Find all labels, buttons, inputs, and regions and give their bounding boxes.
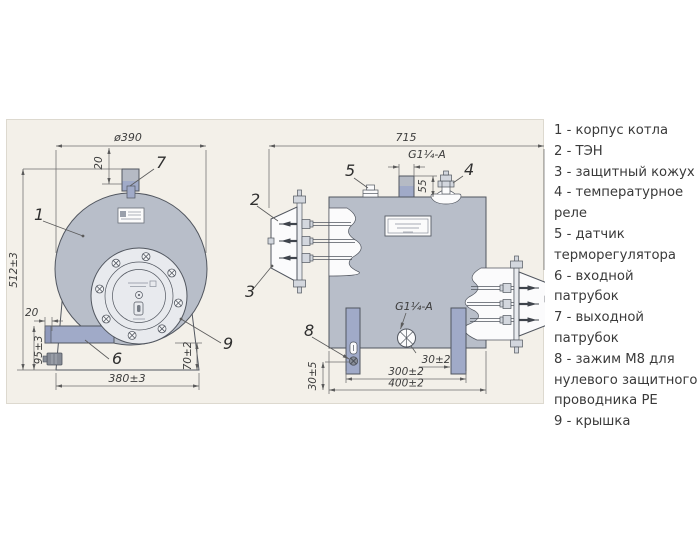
drawing-canvas: ø390 20 512±3 xyxy=(7,120,545,405)
dim-length-text: 715 xyxy=(396,131,417,144)
element-nuts-left xyxy=(302,220,313,263)
dim-diameter-text: ø390 xyxy=(113,131,142,144)
dim-inlet-height: 95±3 xyxy=(33,326,45,370)
side-view: 715 G1¼-A 55 G1¼-A xyxy=(245,131,545,394)
legend-item-1: 1 - корпус котла xyxy=(554,121,700,142)
dim-inlet-height-text: 95±3 xyxy=(33,336,45,365)
dim-leg-span-text: 300±2 xyxy=(388,366,424,378)
callout-3: 3 xyxy=(245,282,255,301)
dim-clamp-height-text: 30±5 xyxy=(307,361,319,390)
dim-cover-floor: 70±2 xyxy=(175,341,202,370)
dim-base-width-text: 380±3 xyxy=(108,372,145,385)
legend-item-3: 3 - защитный кожух xyxy=(554,163,700,184)
heating-element-right xyxy=(465,256,545,353)
callout-1: 1 xyxy=(34,205,44,224)
dim-inlet-thread-text: G1¼-A xyxy=(395,300,433,313)
dim-base-width: 380±3 xyxy=(56,372,199,390)
front-nameplate xyxy=(118,208,144,223)
callout-2: 2 xyxy=(250,190,260,209)
callout-5: 5 xyxy=(345,161,355,180)
legend-item-5: 5 - датчик терморегулятора xyxy=(554,225,700,267)
callout-6: 6 xyxy=(112,349,122,368)
dim-pipe-offset-text: 20 xyxy=(93,156,105,170)
inlet-boss xyxy=(398,329,417,353)
callout-9: 9 xyxy=(223,334,233,353)
legend-item-7: 7 - выходной патрубок xyxy=(554,308,700,350)
element-flange-left xyxy=(297,198,302,283)
dim-leg-inset-text: 30±2 xyxy=(422,354,451,366)
callout-7: 7 xyxy=(156,153,167,172)
dim-cover-floor-text: 70±2 xyxy=(182,341,194,370)
dim-inlet-offset-text: 20 xyxy=(25,307,39,319)
legend-item-4: 4 - температурное реле xyxy=(554,183,700,225)
legend-item-8: 8 - зажим М8 для нулевого защитного пров… xyxy=(554,350,700,412)
dim-base-length-text: 400±2 xyxy=(388,378,424,390)
front-view: ø390 20 512±3 xyxy=(8,131,233,390)
element-nuts-right xyxy=(500,284,511,325)
cover xyxy=(91,248,187,344)
thermostat-sensor xyxy=(363,185,378,197)
dim-height-text: 512±3 xyxy=(8,252,20,288)
callout-8: 8 xyxy=(304,321,314,340)
outlet-pipe-side xyxy=(399,176,414,197)
element-flange-right xyxy=(514,268,519,340)
dim-pipe-offset: 20 xyxy=(93,148,122,184)
technical-drawing: ø390 20 512±3 xyxy=(6,119,544,404)
legend-item-9: 9 - крышка xyxy=(554,412,700,433)
dim-outlet-thread: G1¼-A xyxy=(388,148,446,176)
legend-item-6: 6 - входной патрубок xyxy=(554,267,700,309)
leg-right xyxy=(451,308,466,374)
drain-fitting xyxy=(43,353,62,365)
legend-item-2: 2 - ТЭН xyxy=(554,142,700,163)
callout-4: 4 xyxy=(464,160,474,179)
side-nameplate xyxy=(385,216,431,236)
boiler-drawing-page: ø390 20 512±3 xyxy=(0,0,700,549)
temperature-relay xyxy=(437,171,455,194)
dim-outlet-thread-text: G1¼-A xyxy=(408,148,446,161)
parts-legend: 1 - корпус котла 2 - ТЭН 3 - защитный ко… xyxy=(554,121,700,433)
protective-casing xyxy=(271,207,297,282)
dim-clamp-height: 30±5 xyxy=(307,361,349,390)
dim-outlet-height-text: 55 xyxy=(417,179,429,193)
